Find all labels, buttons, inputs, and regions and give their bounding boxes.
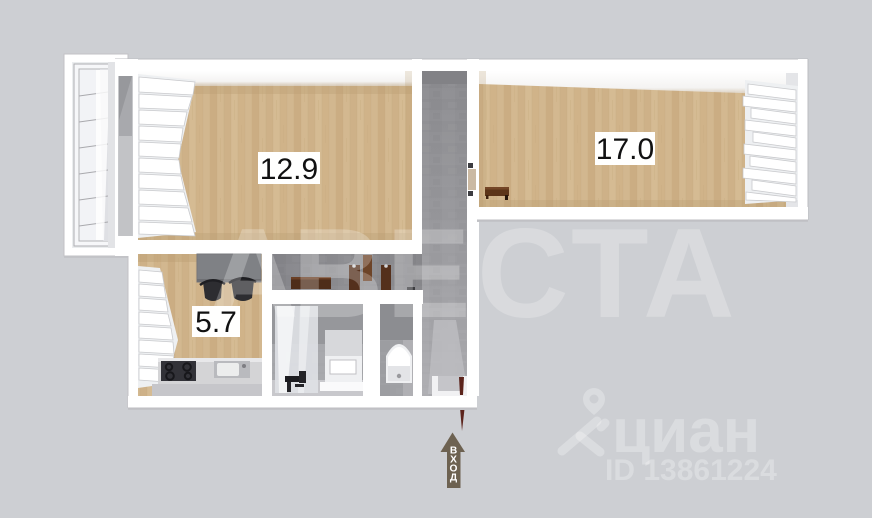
svg-text:17.0: 17.0 [596,133,654,166]
svg-text:В: В [292,202,384,344]
svg-text:Е: Е [386,202,471,344]
svg-text:Т: Т [571,202,649,344]
svg-text:Д: Д [450,473,458,484]
svg-text:ID 13861224: ID 13861224 [605,454,777,487]
svg-text:С: С [477,202,569,344]
svg-text:5.7: 5.7 [195,306,237,339]
svg-text:А: А [643,202,735,344]
svg-text:12.9: 12.9 [260,153,318,186]
